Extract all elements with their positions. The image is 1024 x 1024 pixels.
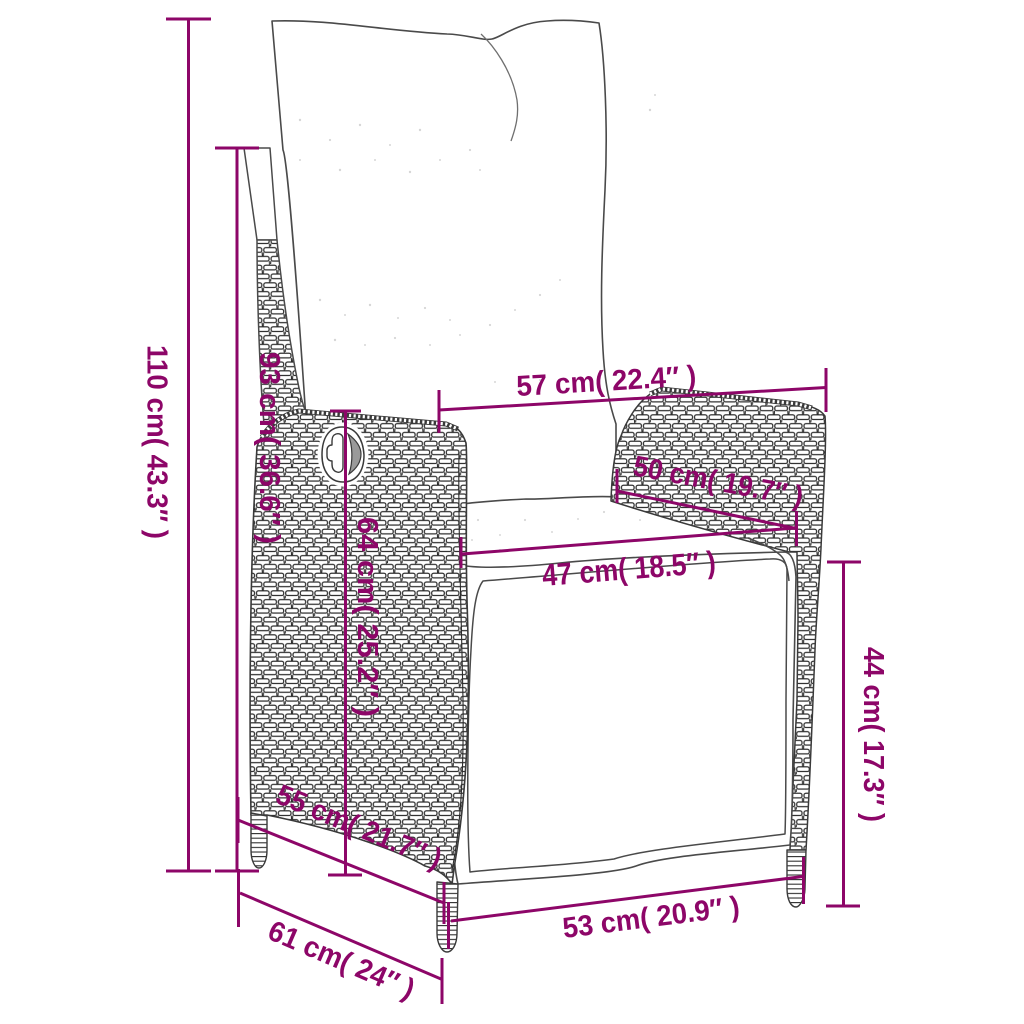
svg-text:110 cm( 43.3″ ): 110 cm( 43.3″ ) (141, 345, 173, 539)
svg-text:44 cm( 17.3″ ): 44 cm( 17.3″ ) (857, 647, 889, 822)
svg-text:64 cm( 25.2″ ): 64 cm( 25.2″ ) (351, 517, 383, 717)
svg-text:93 cm( 36.6″ ): 93 cm( 36.6″ ) (253, 352, 285, 544)
